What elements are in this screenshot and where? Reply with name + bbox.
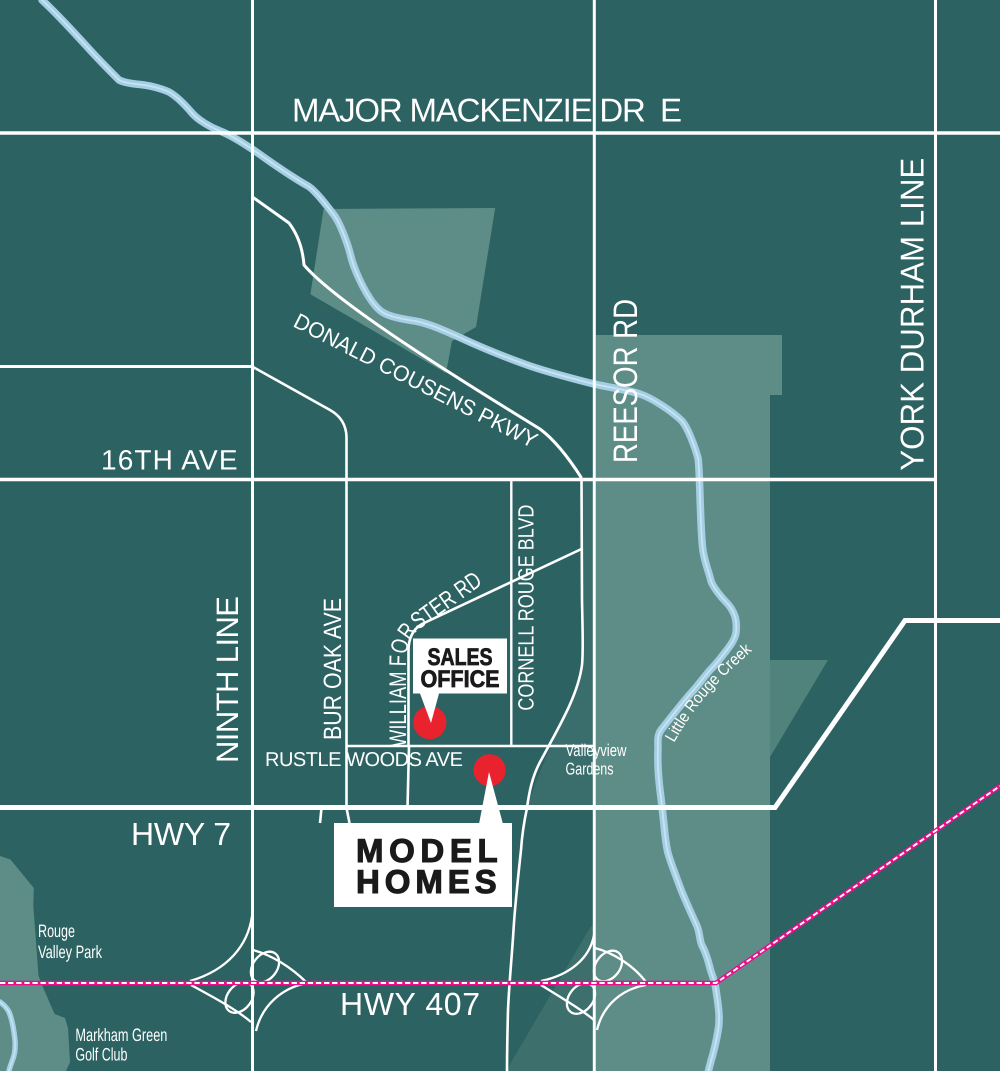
svg-text:NINTH LINE: NINTH LINE bbox=[210, 596, 245, 763]
svg-text:Valleyview: Valleyview bbox=[566, 741, 628, 760]
svg-text:Valley Park: Valley Park bbox=[38, 942, 103, 962]
svg-text:HOMES: HOMES bbox=[356, 863, 497, 900]
svg-text:RUSTLE WOODS AVE: RUSTLE WOODS AVE bbox=[265, 749, 463, 771]
svg-text:BUR OAK AVE: BUR OAK AVE bbox=[319, 598, 347, 740]
svg-text:YORK DURHAM LINE: YORK DURHAM LINE bbox=[894, 158, 931, 471]
svg-text:CORNELL ROUGE BLVD: CORNELL ROUGE BLVD bbox=[514, 505, 539, 711]
svg-text:Rouge: Rouge bbox=[38, 921, 75, 941]
svg-text:REESOR RD: REESOR RD bbox=[607, 299, 645, 463]
svg-text:MAJOR MACKENZIE DR E: MAJOR MACKENZIE DR E bbox=[292, 92, 682, 129]
svg-text:Gardens: Gardens bbox=[566, 760, 614, 779]
svg-text:Golf Club: Golf Club bbox=[75, 1045, 127, 1065]
svg-text:OFFICE: OFFICE bbox=[421, 666, 500, 693]
svg-text:HWY 407: HWY 407 bbox=[340, 986, 480, 1022]
svg-text:HWY 7: HWY 7 bbox=[131, 816, 231, 852]
svg-text:16TH AVE: 16TH AVE bbox=[101, 445, 238, 476]
svg-text:Markham Green: Markham Green bbox=[75, 1025, 167, 1045]
